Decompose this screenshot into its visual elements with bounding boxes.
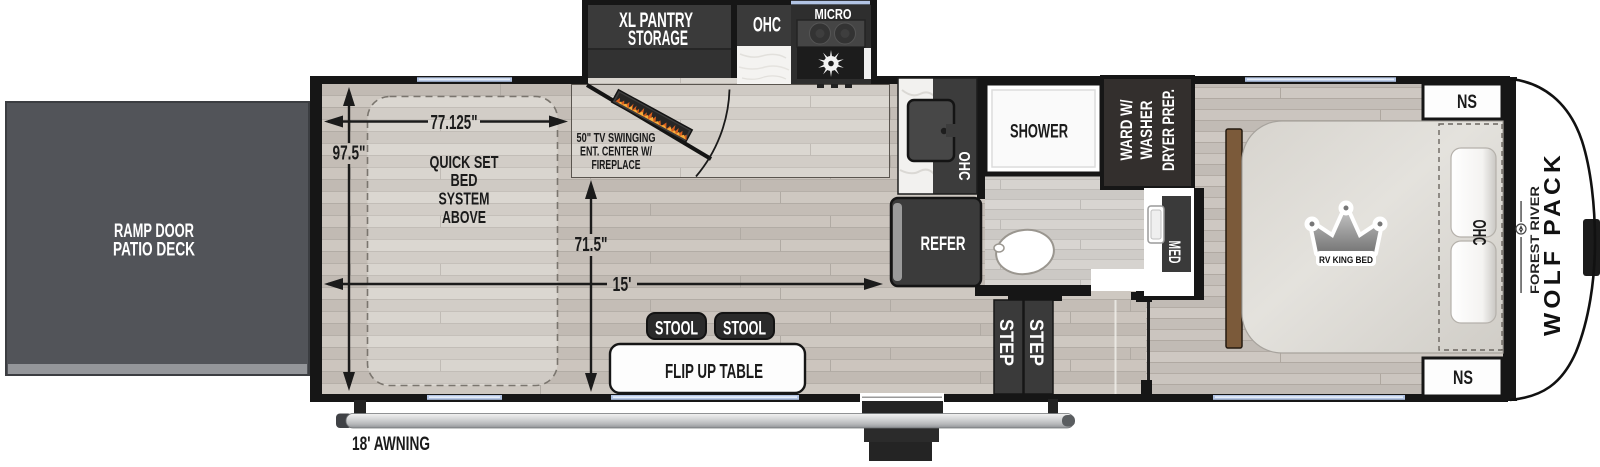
svg-text:FIREPLACE: FIREPLACE <box>592 157 641 172</box>
svg-text:WOLF PACK: WOLF PACK <box>1539 151 1565 336</box>
svg-text:STOOL: STOOL <box>655 319 698 340</box>
svg-text:STEP: STEP <box>995 319 1017 366</box>
svg-text:WASHER: WASHER <box>1138 100 1156 159</box>
svg-text:QUICK SET: QUICK SET <box>430 152 499 172</box>
svg-text:71.5": 71.5" <box>575 234 608 256</box>
svg-text:15': 15' <box>613 274 632 296</box>
svg-text:77.125": 77.125" <box>431 112 478 134</box>
svg-text:SHOWER: SHOWER <box>1010 121 1068 143</box>
svg-text:OHC: OHC <box>753 13 781 37</box>
svg-text:18' AWNING: 18' AWNING <box>352 434 430 455</box>
svg-text:WARD W/: WARD W/ <box>1118 99 1136 160</box>
svg-text:BED: BED <box>451 170 478 190</box>
svg-text:PATIO DECK: PATIO DECK <box>113 239 195 261</box>
svg-text:NS: NS <box>1453 367 1473 389</box>
svg-text:DRYER PREP.: DRYER PREP. <box>1160 89 1178 171</box>
svg-text:OHC: OHC <box>955 152 972 181</box>
svg-text:STEP: STEP <box>1025 319 1047 366</box>
svg-text:97.5": 97.5" <box>333 143 366 165</box>
svg-text:RV KING BED: RV KING BED <box>1319 255 1373 266</box>
svg-text:STOOL: STOOL <box>723 319 766 340</box>
svg-text:ABOVE: ABOVE <box>442 207 486 227</box>
svg-text:FLIP UP TABLE: FLIP UP TABLE <box>665 361 763 383</box>
svg-text:SYSTEM: SYSTEM <box>439 189 490 209</box>
svg-text:OHC: OHC <box>1469 220 1489 246</box>
svg-text:STORAGE: STORAGE <box>628 26 688 50</box>
svg-text:REFER: REFER <box>921 233 966 255</box>
svg-text:NS: NS <box>1457 91 1477 113</box>
svg-text:MED: MED <box>1165 241 1184 264</box>
